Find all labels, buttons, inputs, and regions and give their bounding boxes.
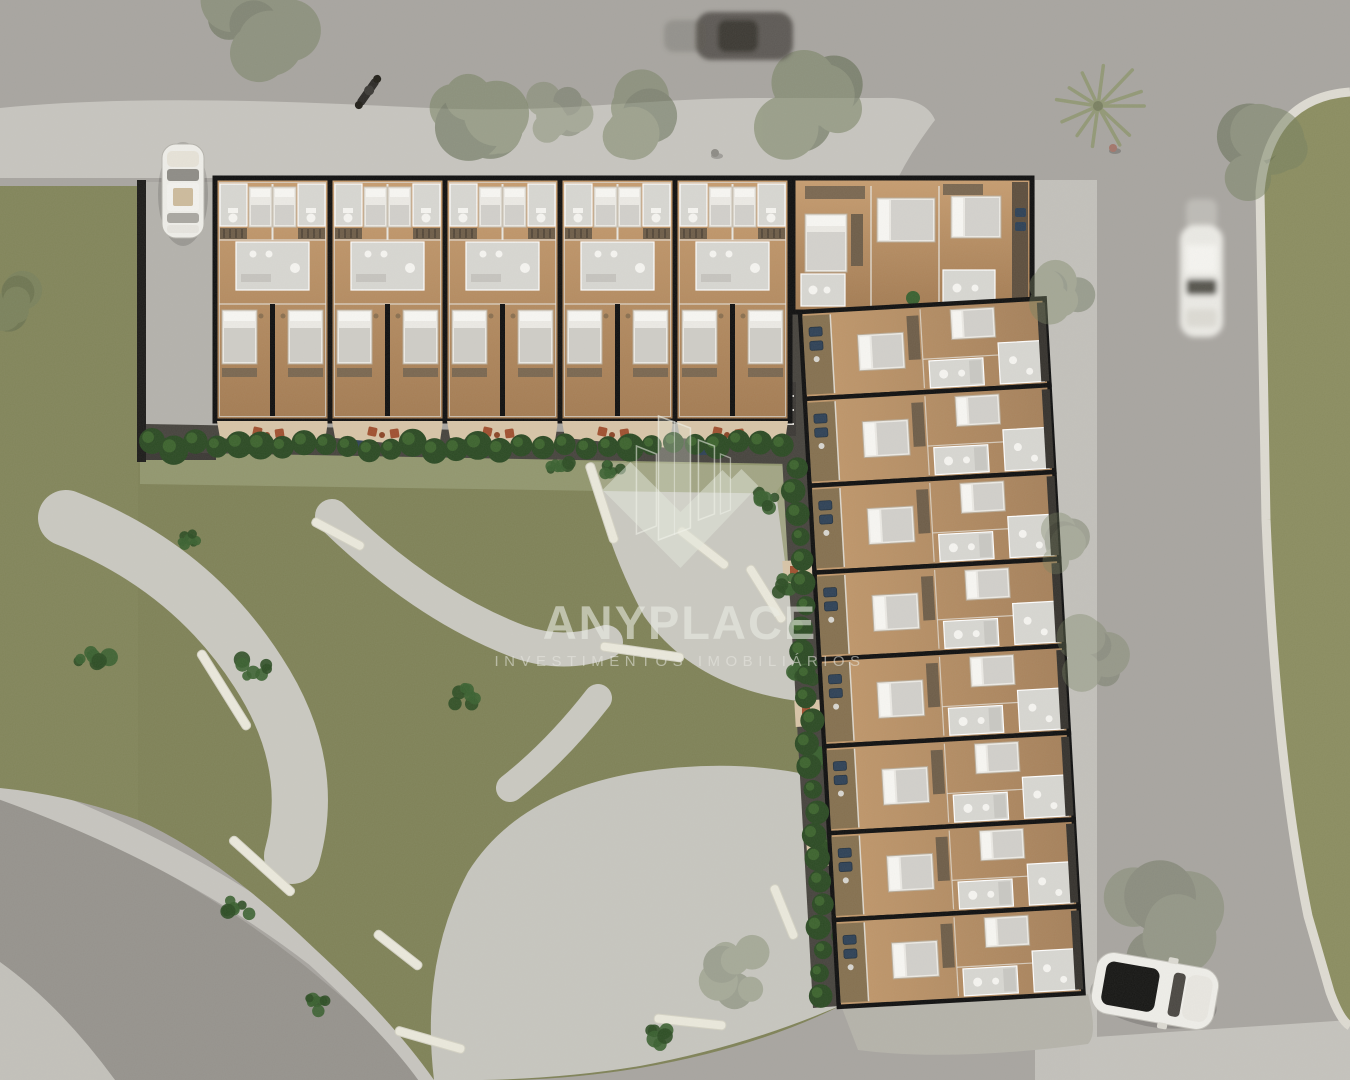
aerial-site-plan-rendering: ANYPLACE INVESTIMENTOS IMOBILIÁRIOS <box>0 0 1350 1080</box>
photo-grain-overlay <box>0 0 1350 1080</box>
ground-svg <box>0 0 1350 1080</box>
